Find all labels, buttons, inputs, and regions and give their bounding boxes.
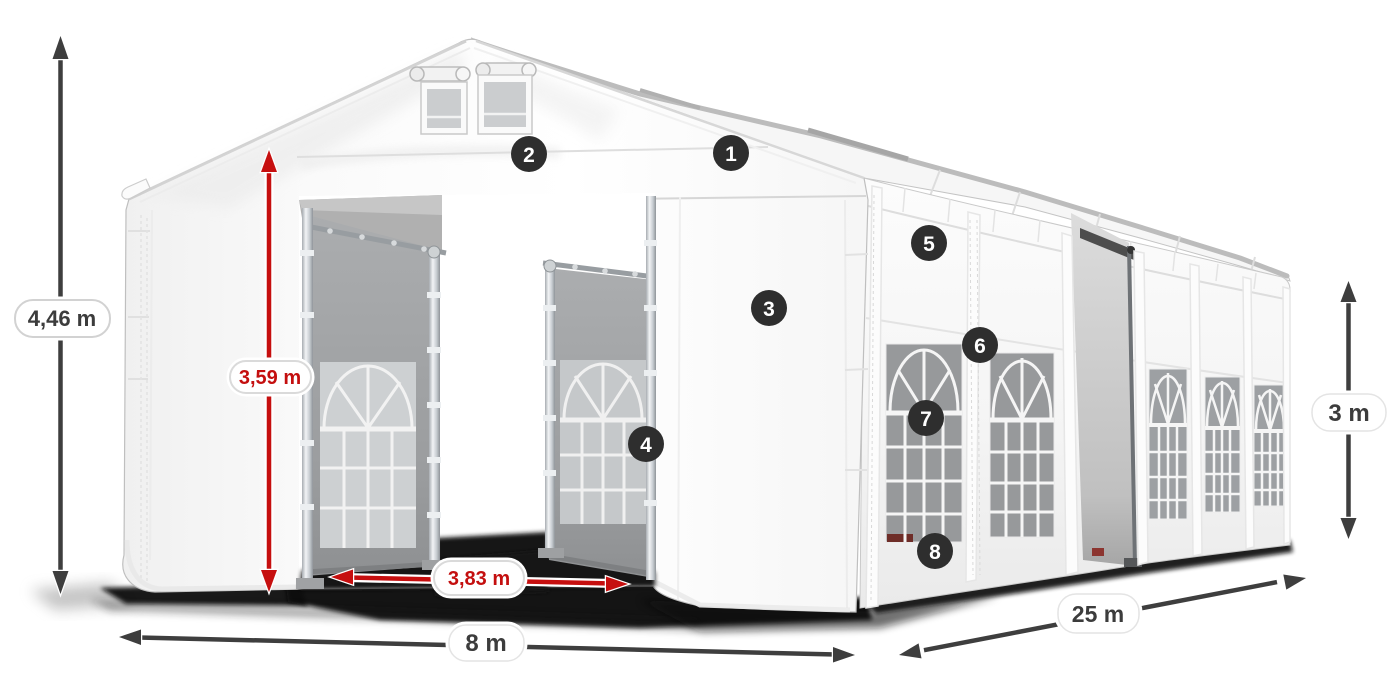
svg-text:7: 7 — [920, 408, 932, 431]
svg-text:1: 1 — [725, 143, 737, 166]
svg-text:4,46 m: 4,46 m — [28, 306, 97, 331]
svg-text:2: 2 — [523, 144, 535, 167]
svg-text:3,83 m: 3,83 m — [448, 568, 510, 590]
svg-text:4: 4 — [640, 434, 652, 457]
svg-text:6: 6 — [974, 335, 986, 358]
svg-text:25 m: 25 m — [1072, 601, 1124, 627]
svg-text:3 m: 3 m — [1328, 400, 1369, 427]
svg-text:5: 5 — [923, 233, 935, 256]
svg-text:3: 3 — [763, 298, 775, 321]
svg-text:8 m: 8 m — [465, 630, 506, 657]
svg-text:8: 8 — [929, 541, 941, 564]
svg-text:3,59 m: 3,59 m — [239, 367, 301, 389]
